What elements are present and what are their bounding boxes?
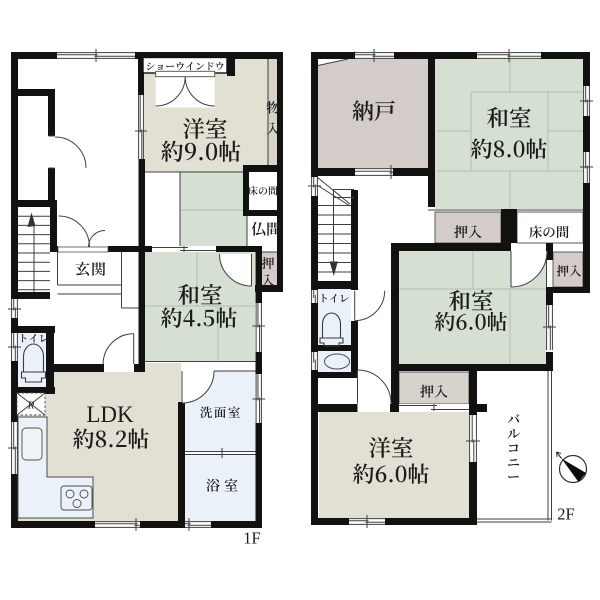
svg-text:1F: 1F xyxy=(243,529,260,548)
svg-text:2F: 2F xyxy=(557,505,574,524)
svg-text:LDK: LDK xyxy=(86,402,134,427)
svg-text:R: R xyxy=(27,400,35,412)
